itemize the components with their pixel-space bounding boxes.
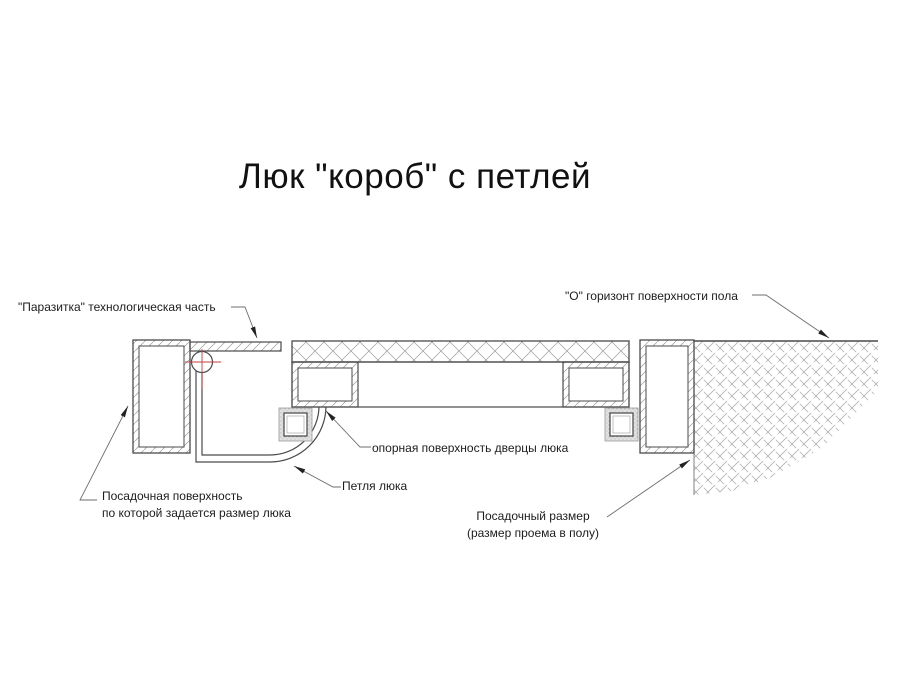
seal-square-left: [279, 408, 312, 441]
label-door-support: опорная поверхность дверцы люка: [372, 440, 568, 457]
seal-square-right: [605, 408, 638, 441]
right-frame-profile: [640, 340, 694, 453]
label-seating-surface-line1: Посадочная поверхность: [102, 488, 291, 505]
parazitka-strip: [190, 342, 281, 351]
leader-hinge: [294, 466, 341, 487]
label-floor-horizon: "О" горизонт поверхности пола: [565, 288, 738, 305]
floor-mass-hatch: [694, 341, 878, 495]
technical-drawing: [0, 0, 900, 700]
label-seating-size-line1: Посадочный размер: [452, 508, 614, 525]
leader-parazitka: [231, 307, 257, 338]
leader-floor-horizon: [752, 295, 829, 338]
hatch-door: [292, 341, 629, 407]
leader-door-support: [326, 411, 371, 447]
door-right-tube: [563, 362, 629, 407]
label-seating-size-line2: (размер проема в полу): [452, 525, 614, 542]
door-top-slab: [292, 341, 629, 362]
label-seating-size: Посадочный размер (размер проема в полу): [452, 508, 614, 542]
label-seating-surface: Посадочная поверхность по которой задает…: [102, 488, 291, 522]
label-hinge: Петля люка: [342, 478, 407, 495]
label-parazitka: "Паразитка" технологическая часть: [18, 299, 216, 316]
door-left-tube: [292, 362, 358, 407]
left-frame-profile: [133, 340, 190, 453]
label-seating-surface-line2: по которой задается размер люка: [102, 505, 291, 522]
drawing-page: Люк "короб" с петлей: [0, 0, 900, 700]
leader-seating-surface: [80, 406, 128, 500]
leader-seating-size: [607, 460, 690, 517]
